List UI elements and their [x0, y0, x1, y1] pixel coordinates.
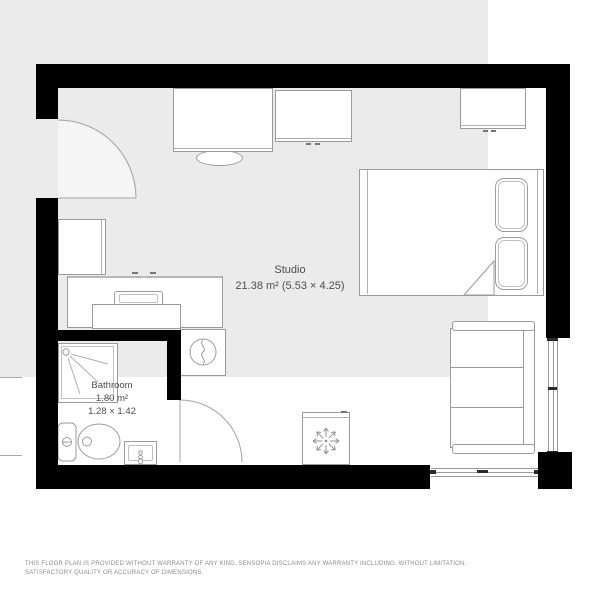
disclaimer-text: THIS FLOOR PLAN IS PROVIDED WITHOUT WARR…: [25, 560, 477, 578]
wall-bottom: [36, 465, 430, 489]
wall-bathroom-horizontal: [58, 330, 181, 341]
duvet-fold: [464, 261, 494, 295]
wall-left-lower: [36, 198, 58, 489]
shower-head-icon: [63, 349, 69, 355]
studio-dimensions: 21.38 m² (5.53 × 4.25): [235, 278, 344, 294]
wall-bathroom-vertical: [167, 330, 181, 400]
studio-room-label: Studio 21.38 m² (5.53 × 4.25): [235, 262, 344, 294]
wall-left-upper: [36, 64, 58, 119]
plan-symbols: [0, 0, 600, 600]
window-bottom: [430, 465, 540, 489]
bathroom-room-label: Bathroom 1.80 m² 1.28 × 1.42: [88, 379, 136, 418]
wall-top: [36, 64, 570, 88]
toilet: [58, 423, 120, 461]
wall-corner-bottom-right: [538, 452, 572, 489]
wall-right: [546, 64, 570, 338]
floor-plan: Studio 21.38 m² (5.53 × 4.25) Bathroom 1…: [0, 0, 600, 600]
bathroom-door-swing-area: [180, 400, 242, 462]
washing-machine-wave: [202, 340, 205, 364]
bathroom-dimensions: 1.28 × 1.42: [88, 405, 136, 418]
washbasin-faucet: [138, 451, 142, 464]
bathroom-name: Bathroom: [88, 379, 136, 392]
bathroom-area: 1.80 m²: [88, 392, 136, 405]
entry-door-swing-area: [58, 120, 136, 198]
studio-name: Studio: [235, 262, 344, 278]
snowflake-icon: [313, 428, 339, 454]
window-right: [546, 338, 570, 454]
